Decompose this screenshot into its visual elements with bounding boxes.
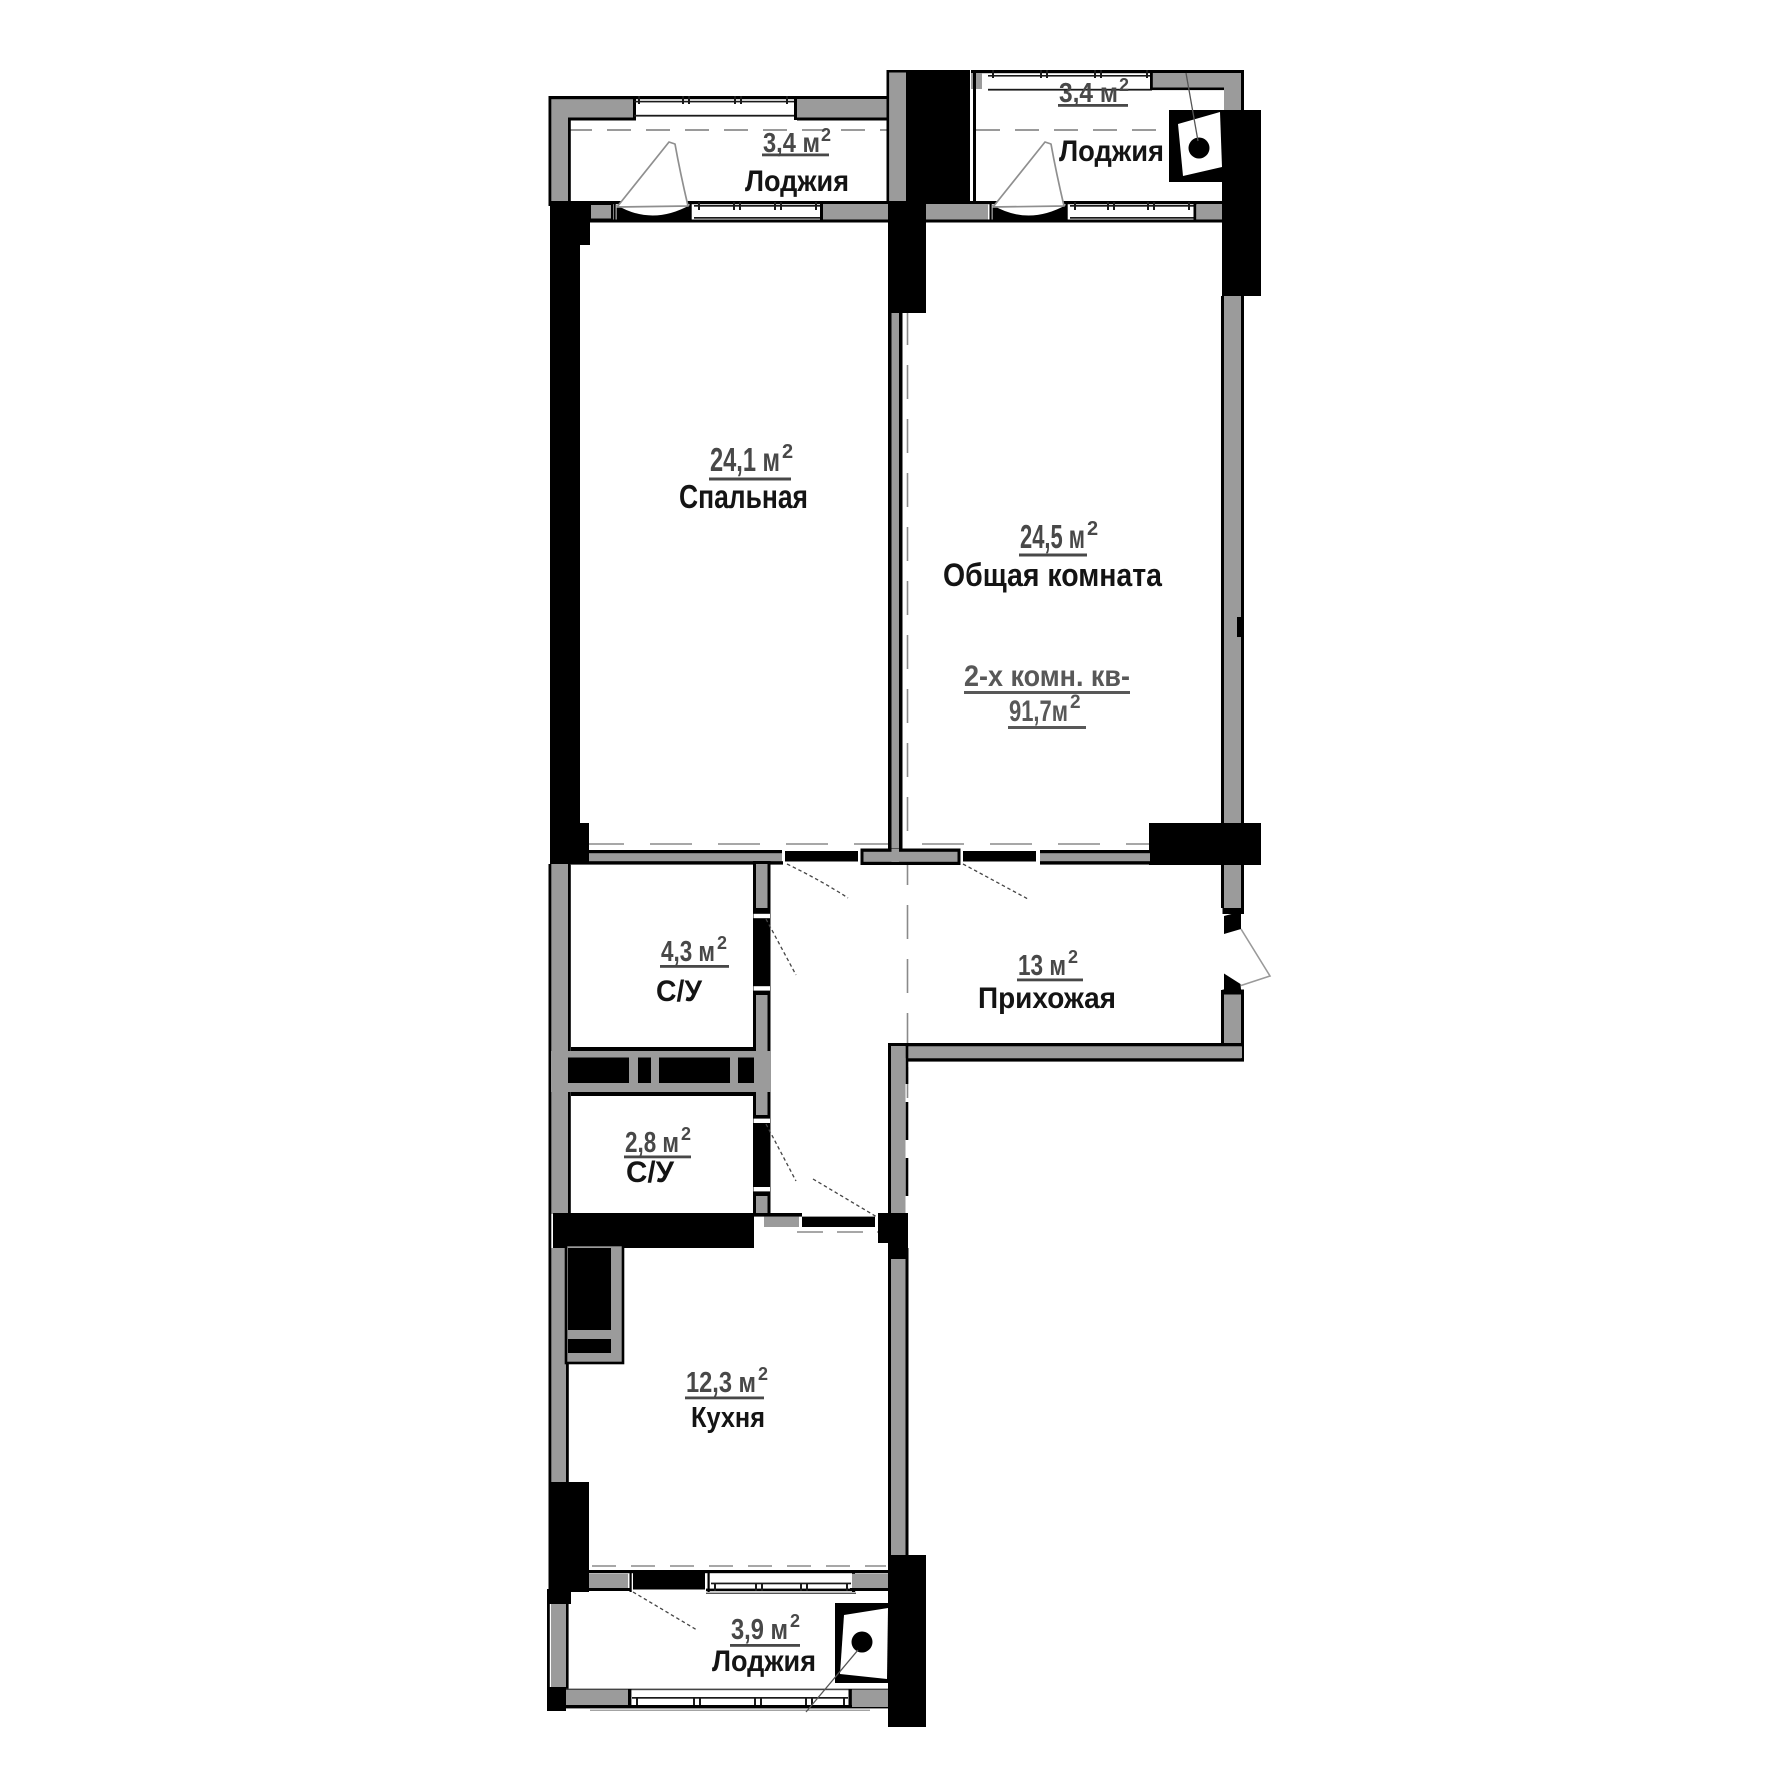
svg-text:2: 2 <box>758 1364 768 1384</box>
svg-text:2: 2 <box>1070 692 1081 713</box>
svg-text:3,4 м: 3,4 м <box>1059 77 1118 108</box>
svg-text:2-х комн. кв-: 2-х комн. кв- <box>964 660 1130 693</box>
svg-text:2: 2 <box>821 125 831 145</box>
svg-text:Общая комната: Общая комната <box>943 557 1162 593</box>
svg-text:2: 2 <box>782 441 793 463</box>
svg-text:Лоджия: Лоджия <box>745 165 849 198</box>
svg-text:3,9 м: 3,9 м <box>731 1614 788 1646</box>
svg-text:13 м: 13 м <box>1018 950 1066 982</box>
svg-text:Спальная: Спальная <box>679 478 808 515</box>
svg-text:2,8 м: 2,8 м <box>625 1127 679 1159</box>
svg-text:12,3 м: 12,3 м <box>686 1367 756 1399</box>
svg-text:Кухня: Кухня <box>691 1402 765 1434</box>
svg-text:Лоджия: Лоджия <box>1059 135 1164 168</box>
svg-text:С/У: С/У <box>656 975 702 1008</box>
svg-text:Лоджия: Лоджия <box>712 1645 816 1678</box>
svg-text:91,7м: 91,7м <box>1009 695 1068 728</box>
svg-text:2: 2 <box>1068 947 1078 967</box>
svg-text:3,4 м: 3,4 м <box>763 127 820 158</box>
svg-text:24,1 м: 24,1 м <box>710 441 780 478</box>
svg-text:2: 2 <box>790 1611 800 1631</box>
svg-text:2: 2 <box>681 1124 691 1144</box>
svg-text:2: 2 <box>717 933 727 953</box>
svg-text:24,5 м: 24,5 м <box>1020 518 1085 555</box>
svg-text:2: 2 <box>1087 518 1098 540</box>
svg-text:С/У: С/У <box>626 1156 674 1189</box>
svg-text:Прихожая: Прихожая <box>978 982 1116 1015</box>
svg-text:2: 2 <box>1119 75 1129 95</box>
svg-text:4,3 м: 4,3 м <box>661 936 715 968</box>
